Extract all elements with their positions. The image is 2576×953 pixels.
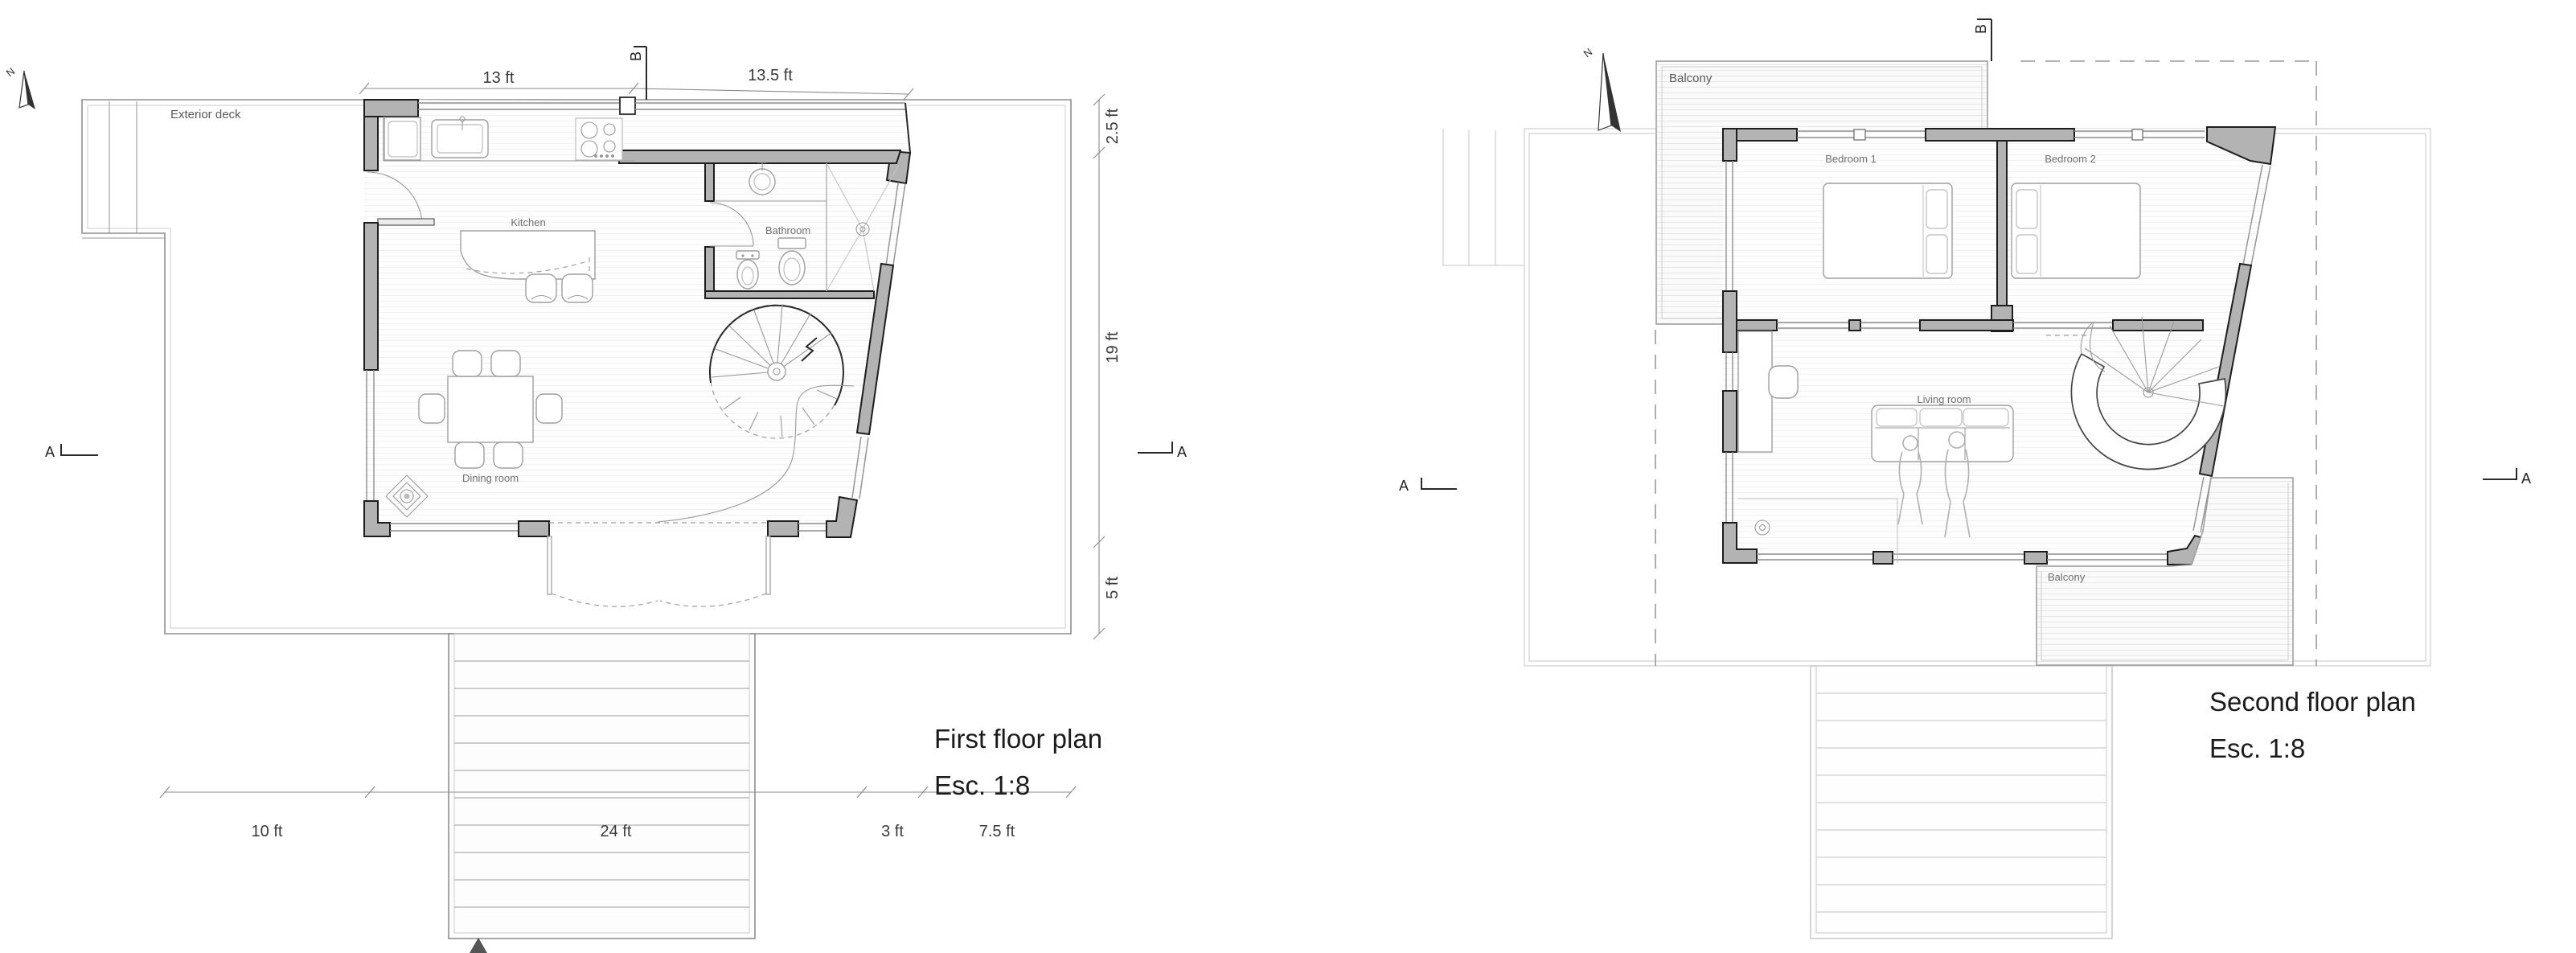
dim-3ft: 3 ft <box>881 823 904 840</box>
drawing-sheet: 13 ft 13.5 ft 2.5 ft 19 ft 5 ft 10 ft 24… <box>0 0 2576 953</box>
chair <box>419 394 445 423</box>
chair <box>491 351 520 376</box>
north-letter-2: N <box>1581 46 1595 60</box>
dim-13ft: 13 ft <box>483 69 515 87</box>
floor-plans-svg: 13 ft 13.5 ft 2.5 ft 19 ft 5 ft 10 ft 24… <box>0 0 2576 953</box>
label-kitchen: Kitchen <box>511 216 545 228</box>
section-marker-b-2: B <box>1973 24 1989 34</box>
house-footprint <box>364 100 910 532</box>
dim-7-5ft: 7.5 ft <box>979 823 1015 840</box>
label-bedroom-2: Bedroom 2 <box>2045 153 2096 165</box>
north-arrow-2: N <box>1581 46 1621 132</box>
dim-5ft: 5 ft <box>1104 577 1122 599</box>
section-marker-a-left: A <box>45 444 55 460</box>
toilet <box>778 238 806 285</box>
chair <box>455 442 484 468</box>
dim-2-5ft: 2.5 ft <box>1104 108 1122 144</box>
chair <box>536 394 562 423</box>
deck-steps <box>82 101 165 238</box>
section-marker-b: B <box>628 51 644 61</box>
dim-13-5ft: 13.5 ft <box>748 67 793 84</box>
stool <box>526 274 556 302</box>
dim-10ft: 10 ft <box>252 823 283 840</box>
stool <box>562 274 593 302</box>
north-arrow: N <box>4 65 35 109</box>
dim-19ft: 19 ft <box>1104 331 1122 363</box>
label-exterior-deck: Exterior deck <box>170 108 241 121</box>
label-living-room: Living room <box>1917 393 1971 405</box>
bed-2 <box>2012 183 2140 278</box>
label-bathroom: Bathroom <box>765 224 810 236</box>
section-marker-a-left-2: A <box>1399 478 1409 494</box>
label-balcony-top: Balcony <box>1669 72 1713 85</box>
dining-table <box>448 376 533 442</box>
bedroom-divider-wall <box>1997 141 2007 306</box>
stair-direction-arrow <box>470 938 487 953</box>
main-exterior-stairs <box>449 634 755 953</box>
bed-1 <box>1823 183 1952 278</box>
kitchen-sink <box>432 117 488 158</box>
stove <box>576 118 622 160</box>
desk-chair <box>1769 366 1798 398</box>
window-post-b <box>620 97 635 114</box>
plan2-title: Second floor plan <box>2209 687 2416 717</box>
label-balcony-bottom: Balcony <box>2048 571 2086 583</box>
entry-double-door <box>548 536 770 606</box>
desk <box>1738 331 1772 452</box>
second-floor-plan: A A B N Balcony Bedroom 1 Bedroom 2 Livi… <box>1399 19 2531 939</box>
bidet <box>736 251 759 289</box>
label-dining-room: Dining room <box>462 472 519 484</box>
sofa <box>1872 405 2013 462</box>
ghost-stairs <box>1811 666 2112 939</box>
north-letter: N <box>4 65 18 80</box>
label-bedroom-1: Bedroom 1 <box>1825 153 1877 165</box>
plan1-scale: Esc. 1:8 <box>934 770 1030 800</box>
section-marker-a-right-2: A <box>2521 470 2531 487</box>
first-floor-plan: 13 ft 13.5 ft 2.5 ft 19 ft 5 ft 10 ft 24… <box>4 47 1187 953</box>
chair <box>453 351 482 376</box>
chair <box>494 442 523 468</box>
dim-24ft: 24 ft <box>601 823 632 840</box>
plan1-title: First floor plan <box>934 724 1102 754</box>
section-marker-a-right: A <box>1177 444 1187 460</box>
plan2-scale: Esc. 1:8 <box>2209 733 2305 763</box>
